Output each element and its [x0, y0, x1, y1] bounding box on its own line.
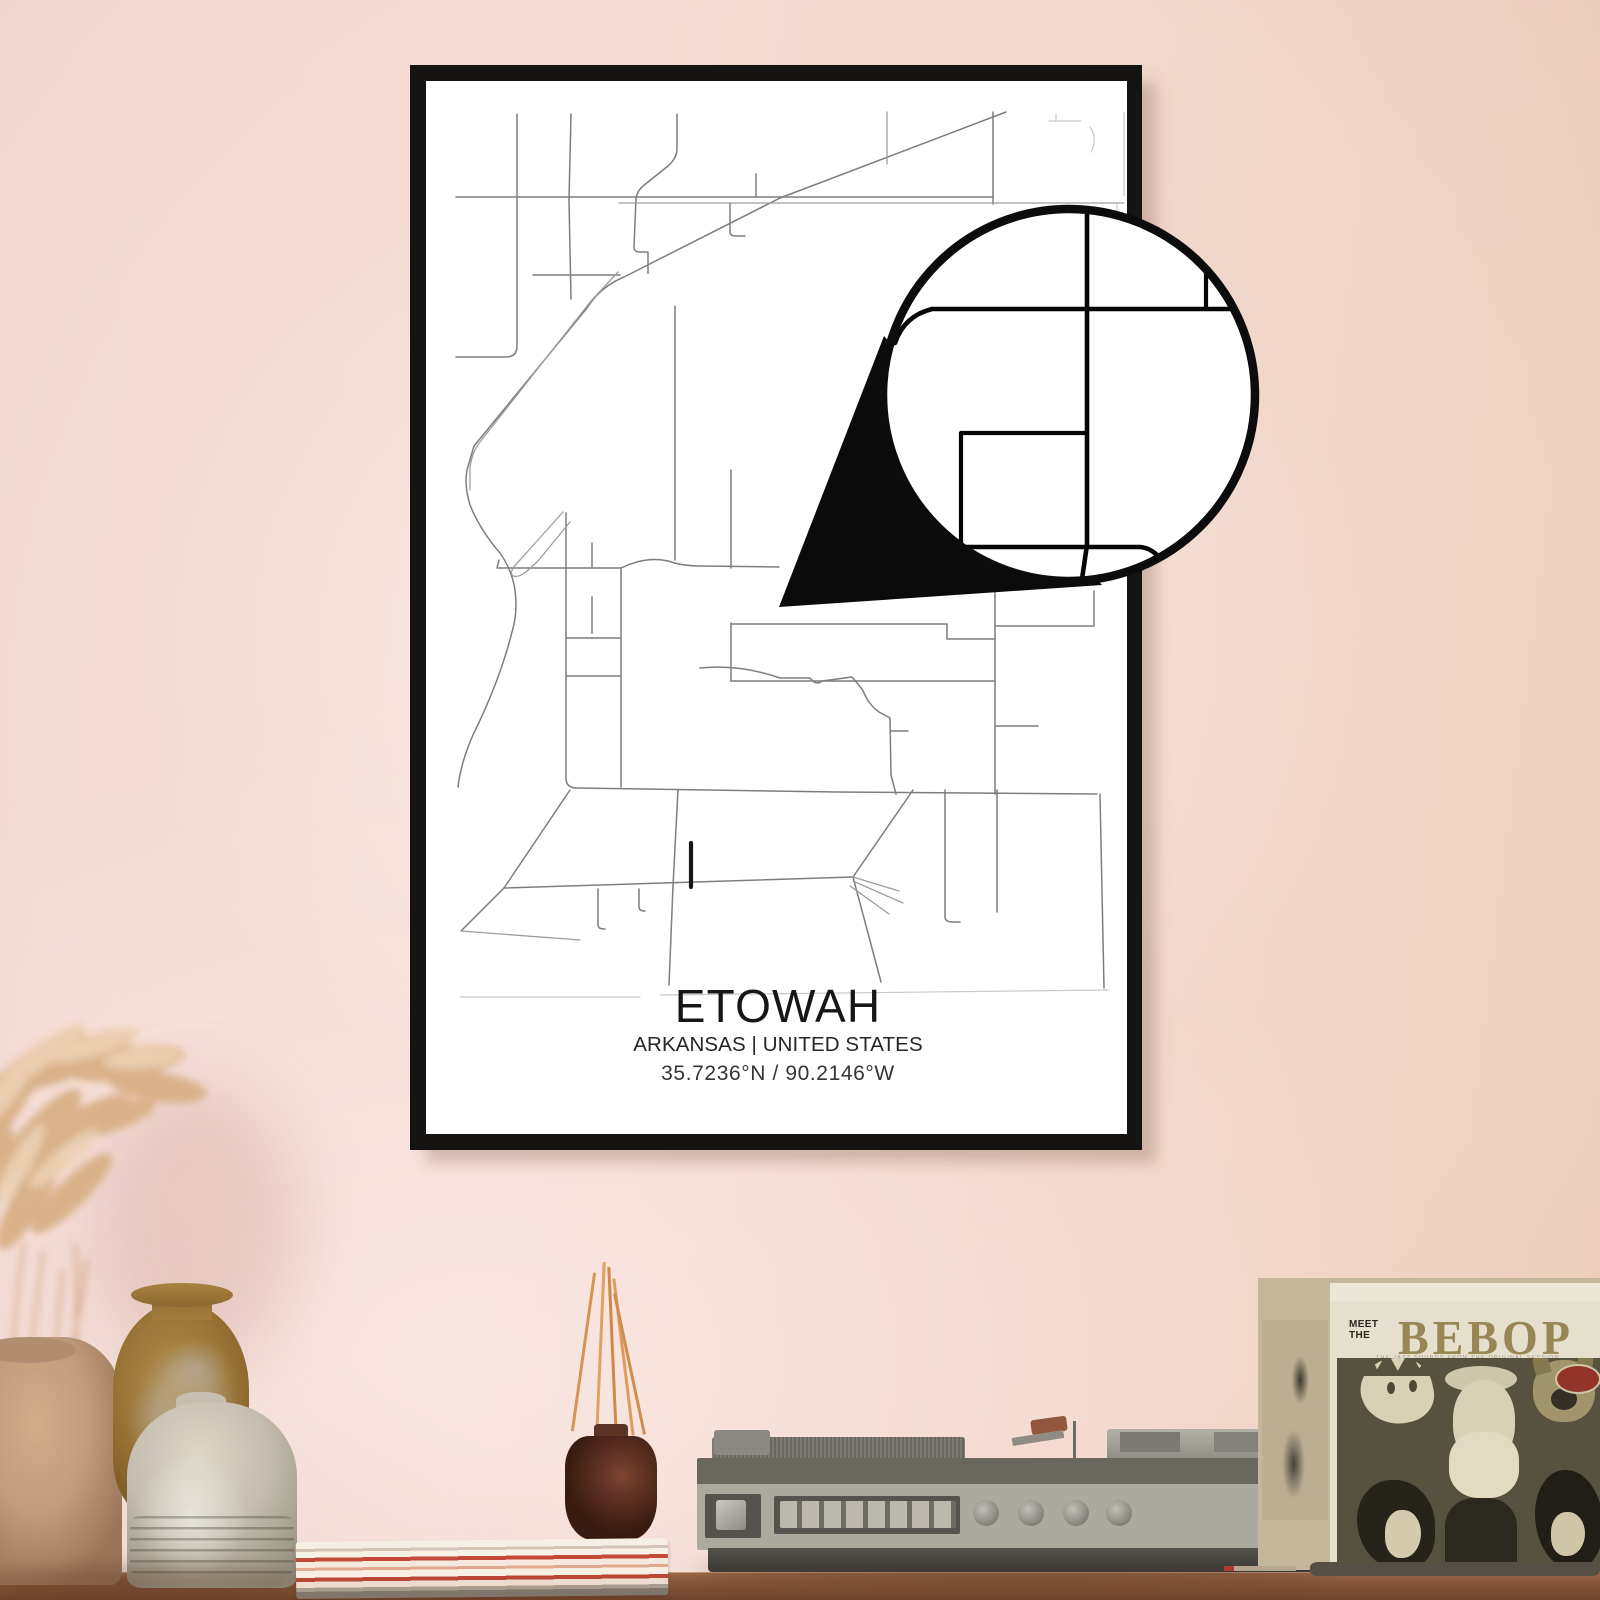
svg-text:ETOWAH: ETOWAH: [675, 980, 882, 1032]
svg-text:35.7236°N / 90.2146°W: 35.7236°N / 90.2146°W: [661, 1062, 895, 1085]
svg-text:ARKANSAS | UNITED STATES: ARKANSAS | UNITED STATES: [633, 1033, 922, 1056]
